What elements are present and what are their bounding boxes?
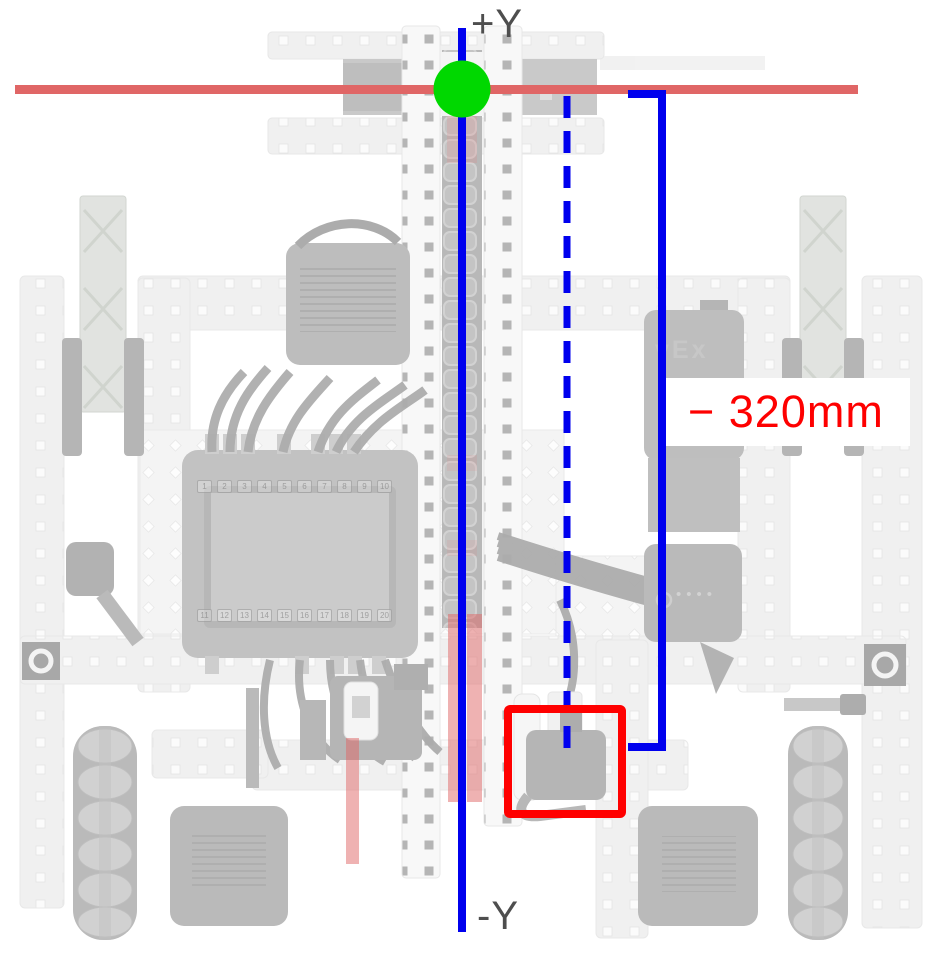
axis-label-plus-y: +Y xyxy=(471,2,523,47)
axis-label-minus-y: -Y xyxy=(477,894,519,939)
red-highlight-bar-center-right xyxy=(467,614,482,802)
distance-label-box: − 320mm xyxy=(666,378,910,446)
origin-marker xyxy=(434,61,491,118)
sensor-highlight-box xyxy=(508,709,622,814)
y-axis-line xyxy=(458,28,466,932)
annotation-overlay xyxy=(0,0,928,960)
red-highlight-bar-left xyxy=(346,738,359,864)
diagram-canvas: 12345678910 11121314151617181920 vEx •••… xyxy=(0,0,928,960)
measurement-bracket xyxy=(628,94,662,747)
distance-label: − 320mm xyxy=(688,386,884,438)
